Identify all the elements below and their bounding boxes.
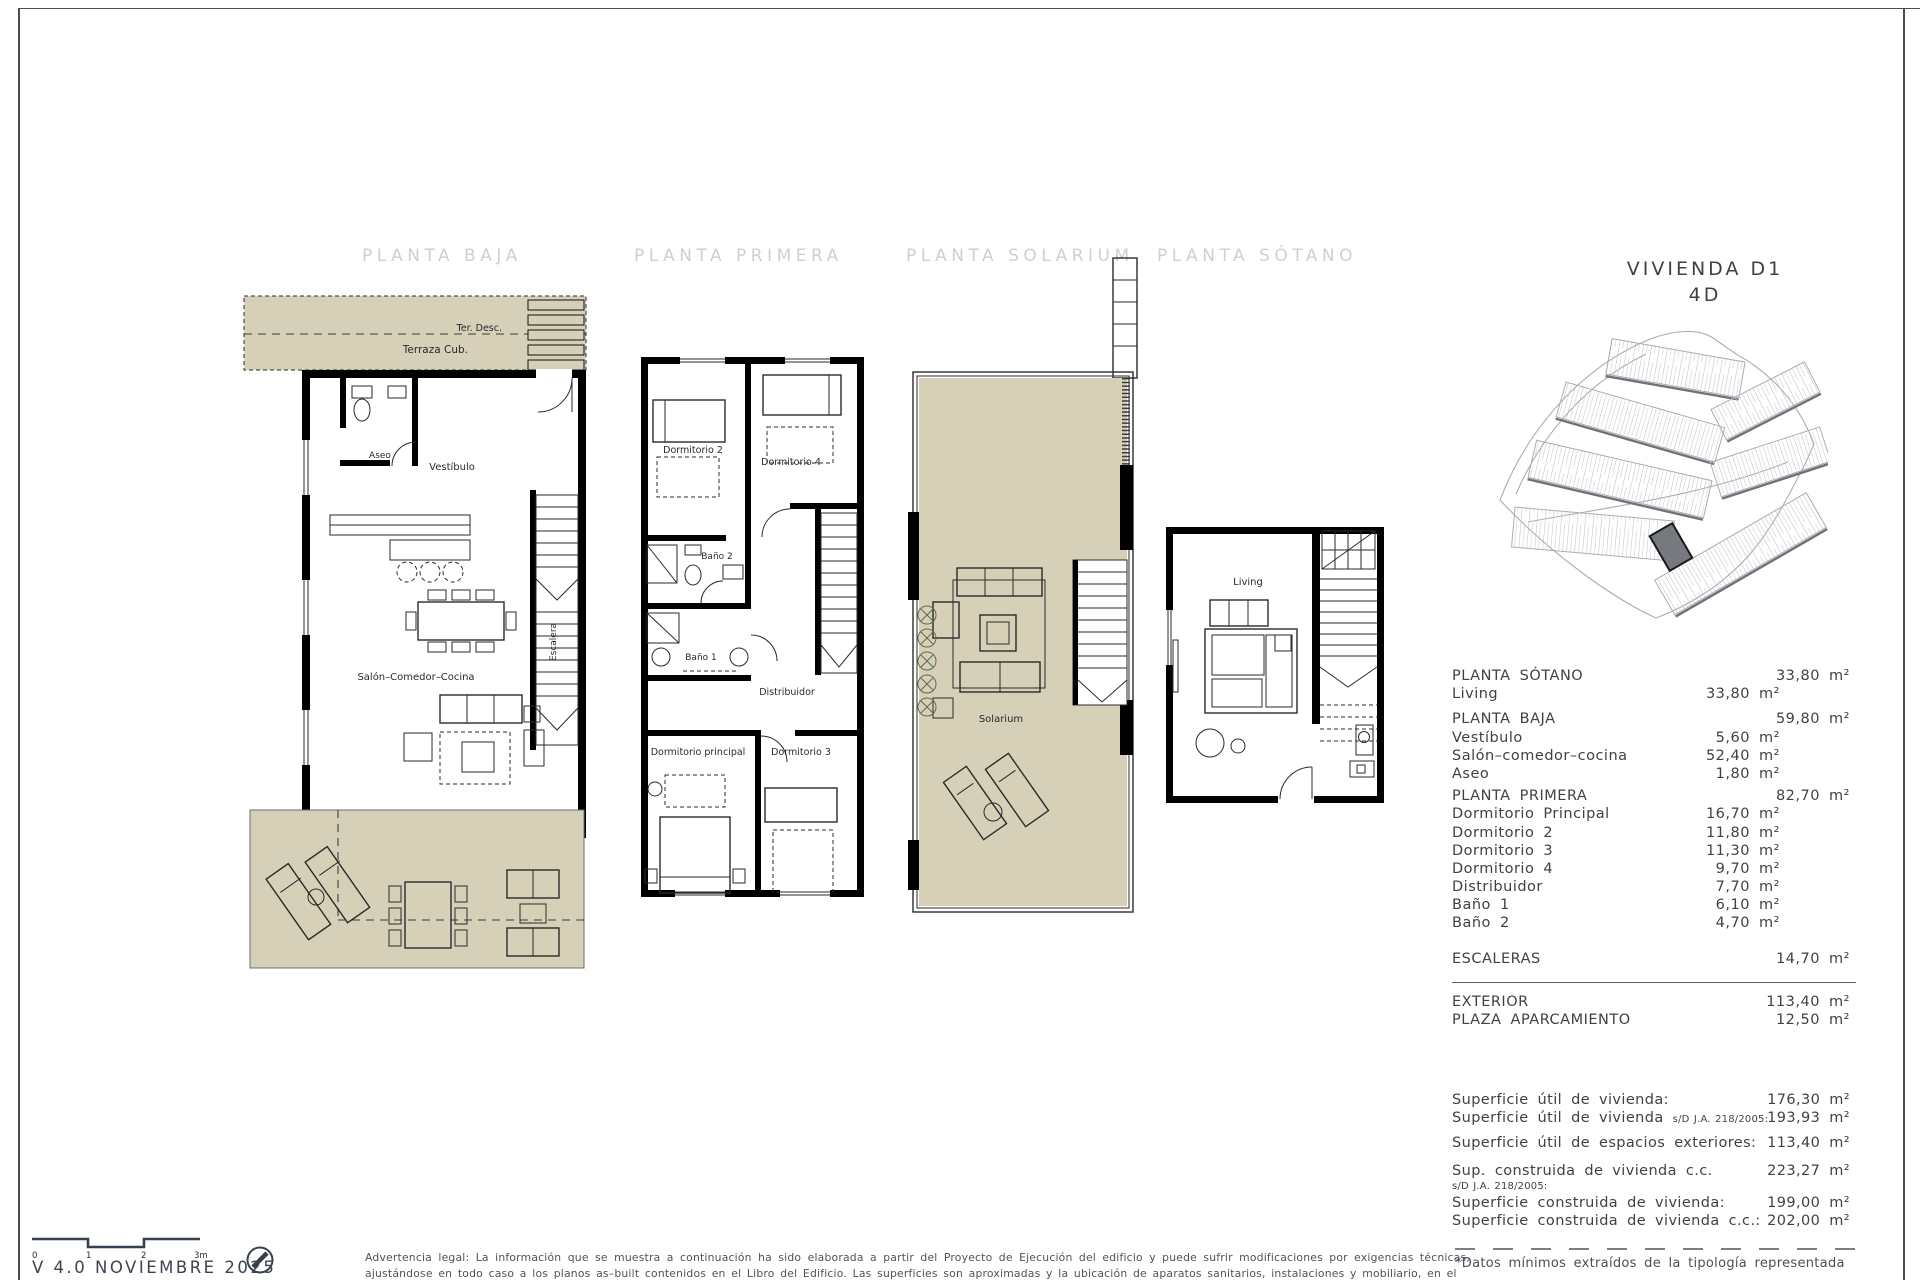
table-row: ESCALERAS14,70 m² [1452, 951, 1856, 969]
summary-row: Superficie construida de vivienda:199,00… [1452, 1195, 1856, 1213]
room-label-ter-desc: Ter. Desc. [456, 323, 502, 334]
housing-row [1512, 507, 1675, 561]
sofa-group [1173, 600, 1297, 713]
summary-row: Superficie útil de vivienda s/D J.A. 218… [1452, 1110, 1856, 1128]
unit-subtitle: 4D [1555, 284, 1855, 306]
room-label-dormitorio3: Dormitorio 3 [771, 747, 831, 758]
walls [301, 369, 586, 839]
walls [1165, 527, 1384, 803]
stair-bulkhead [1113, 258, 1137, 378]
window [301, 580, 311, 635]
terrace-covered: Ter. Desc. Terraza Cub. [244, 296, 586, 370]
table-row: Dormitorio Principal16,70 m² [1452, 806, 1856, 824]
floor-plan-planta-sotano: Living [1160, 515, 1390, 815]
floor-plan-planta-primera: Dormitorio 2 Dormitorio 4 Baño 2 Baño 1 [635, 345, 870, 910]
door-arc [762, 509, 790, 537]
table-row: Aseo1,80 m² [1452, 766, 1856, 784]
plan-title-sotano: PLANTA SÓTANO [1157, 246, 1357, 266]
room-label-aseo: Aseo [369, 451, 391, 461]
table-row: Salón–comedor–cocina52,40 m² [1452, 748, 1856, 766]
door-arc [751, 635, 777, 661]
stairs [1073, 560, 1127, 705]
pergola-slats [528, 300, 584, 370]
plan-title-primera: PLANTA PRIMERA [634, 246, 843, 266]
summary-note: s/D J.A. 218/2005: [1452, 1181, 1856, 1195]
floor-plan-planta-baja: Ter. Desc. Terraza Cub. [240, 290, 590, 980]
table-row: Dormitorio 211,80 m² [1452, 825, 1856, 843]
footnote: *Datos mínimos extraídos de la tipología… [1455, 1256, 1885, 1271]
surface-summary: Superficie útil de vivienda:176,30 m² Su… [1452, 1092, 1856, 1231]
stairs: Escalera [530, 490, 578, 750]
side-table [1231, 739, 1245, 753]
bed [645, 775, 745, 893]
room-label-bano2: Baño 2 [701, 552, 733, 562]
summary-row: Sup. construida de vivienda c.c.223,27 m… [1452, 1163, 1856, 1181]
room-label-dormitorio-principal: Dormitorio principal [651, 747, 746, 758]
sheet-border-right [1903, 8, 1905, 1280]
stairs [821, 513, 857, 673]
stairs [1320, 579, 1377, 741]
room-label-vestibulo: Vestíbulo [429, 461, 475, 473]
table-row: Vestíbulo5,60 m² [1452, 730, 1856, 748]
footnote-divider [1455, 1248, 1855, 1250]
window [680, 356, 725, 365]
bed [765, 788, 837, 892]
table-row: PLANTA BAJA59,80 m² [1452, 711, 1856, 729]
summary-row: Superficie útil de vivienda:176,30 m² [1452, 1092, 1856, 1110]
terrace-garden [250, 810, 584, 968]
window [780, 889, 830, 898]
room-label-dormitorio2: Dormitorio 2 [663, 445, 723, 456]
table-row: PLANTA SÓTANO33,80 m² [1452, 668, 1856, 686]
table-row: Distribuidor7,70 m² [1452, 879, 1856, 897]
sheet-border-top [18, 8, 1920, 9]
table-row: Living33,80 m² [1452, 686, 1856, 704]
room-label-bano1: Baño 1 [685, 653, 717, 663]
room-label-solarium: Solarium [979, 714, 1023, 725]
window [785, 356, 830, 365]
door [1278, 767, 1314, 804]
window [301, 440, 311, 495]
dining-table [406, 590, 516, 652]
version-text: V 4.0 NOVIEMBRE 2025 [32, 1258, 276, 1277]
summary-row: Superficie útil de espacios exteriores:1… [1452, 1135, 1856, 1153]
legal-disclaimer: Advertencia legal: La información que se… [365, 1250, 1470, 1280]
room-label-distribuidor: Distribuidor [759, 687, 815, 698]
site-plan [1488, 322, 1828, 622]
sheet-border-left [18, 8, 20, 1280]
window [301, 710, 311, 765]
summary-row: Superficie construida de vivienda c.c.:2… [1452, 1213, 1856, 1231]
room-label-living: Living [1233, 577, 1263, 588]
unit-title: VIVIENDA D1 [1555, 258, 1855, 280]
sofa-group [404, 695, 544, 784]
housing-row [1606, 339, 1746, 400]
room-label-salon: Salón–Comedor–Cocina [357, 671, 474, 683]
room-label-terraza-cub: Terraza Cub. [402, 344, 468, 356]
table-row: PLANTA PRIMERA82,70 m² [1452, 788, 1856, 806]
stair-hatch [1322, 531, 1375, 569]
table-row: Baño 24,70 m² [1452, 915, 1856, 933]
table-row: Dormitorio 311,30 m² [1452, 843, 1856, 861]
area-table: PLANTA SÓTANO33,80 m² Living33,80 m² PLA… [1452, 668, 1856, 1030]
room-label-escalera: Escalera [549, 623, 559, 661]
utility-fixtures [1350, 725, 1374, 777]
plan-sheet: PLANTA BAJA PLANTA PRIMERA PLANTA SOLARI… [0, 0, 1920, 1280]
bed [763, 375, 841, 463]
scale-bar: 0 1 2 3m [28, 1232, 223, 1260]
table-divider [1452, 982, 1856, 983]
table-row: Dormitorio 49,70 m² [1452, 861, 1856, 879]
room-label-dormitorio4: Dormitorio 4 [761, 457, 821, 468]
floor-plan-planta-solarium: Solarium [905, 250, 1140, 925]
table-row: PLAZA APARCAMIENTO12,50 m² [1452, 1012, 1856, 1030]
kitchen-island [330, 515, 470, 582]
table-row: Baño 16,10 m² [1452, 897, 1856, 915]
side-table [1196, 729, 1224, 757]
plan-title-baja: PLANTA BAJA [362, 246, 522, 266]
table-row: EXTERIOR113,40 m² [1452, 994, 1856, 1012]
